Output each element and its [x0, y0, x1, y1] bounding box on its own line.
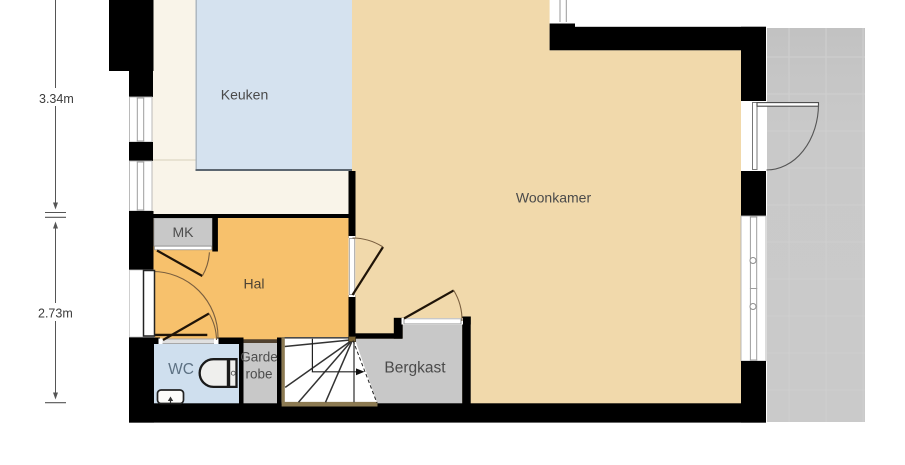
- svg-text:Garde: Garde: [240, 350, 278, 365]
- svg-text:MK: MK: [173, 224, 195, 240]
- svg-text:Hal: Hal: [243, 276, 264, 292]
- svg-text:3.34m: 3.34m: [39, 92, 74, 106]
- svg-text:WC: WC: [168, 361, 194, 378]
- svg-text:Woonkamer: Woonkamer: [516, 190, 592, 206]
- svg-text:Keuken: Keuken: [221, 87, 268, 103]
- svg-text:2.73m: 2.73m: [38, 307, 73, 321]
- svg-text:robe: robe: [245, 367, 272, 382]
- svg-text:Bergkast: Bergkast: [384, 360, 446, 377]
